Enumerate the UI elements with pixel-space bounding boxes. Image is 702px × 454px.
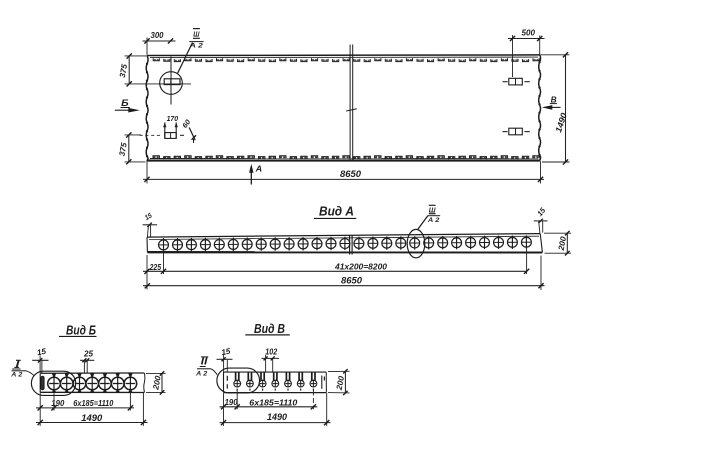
svg-text:1490: 1490 bbox=[267, 412, 287, 422]
svg-text:190: 190 bbox=[51, 399, 65, 408]
svg-text:8650: 8650 bbox=[341, 275, 362, 285]
svg-text:Ш: Ш bbox=[429, 205, 436, 214]
svg-text:А: А bbox=[254, 165, 262, 174]
svg-text:Б: Б bbox=[121, 98, 129, 108]
svg-text:Вид Б: Вид Б bbox=[66, 323, 96, 337]
svg-text:А 2: А 2 bbox=[10, 372, 22, 379]
svg-text:102: 102 bbox=[265, 347, 277, 356]
svg-text:300: 300 bbox=[151, 31, 165, 40]
svg-text:В: В bbox=[551, 94, 557, 104]
svg-text:Ш: Ш bbox=[193, 29, 200, 38]
svg-text:А 2: А 2 bbox=[189, 43, 203, 50]
svg-text:1490: 1490 bbox=[81, 413, 102, 423]
svg-text:А 2: А 2 bbox=[427, 217, 440, 224]
svg-text:А 2: А 2 bbox=[195, 370, 207, 377]
svg-text:500: 500 bbox=[522, 29, 536, 38]
svg-text:25: 25 bbox=[83, 349, 94, 358]
svg-text:170: 170 bbox=[167, 114, 179, 123]
svg-text:Вид А: Вид А bbox=[319, 203, 354, 218]
svg-text:41x200=8200: 41x200=8200 bbox=[334, 261, 387, 271]
svg-text:Вид В: Вид В bbox=[254, 321, 285, 336]
svg-text:225: 225 bbox=[149, 263, 162, 272]
svg-text:6x185=1110: 6x185=1110 bbox=[73, 399, 114, 408]
svg-text:8650: 8650 bbox=[340, 169, 361, 179]
svg-text:6x185=1110: 6x185=1110 bbox=[249, 398, 298, 407]
svg-text:190: 190 bbox=[225, 398, 239, 407]
